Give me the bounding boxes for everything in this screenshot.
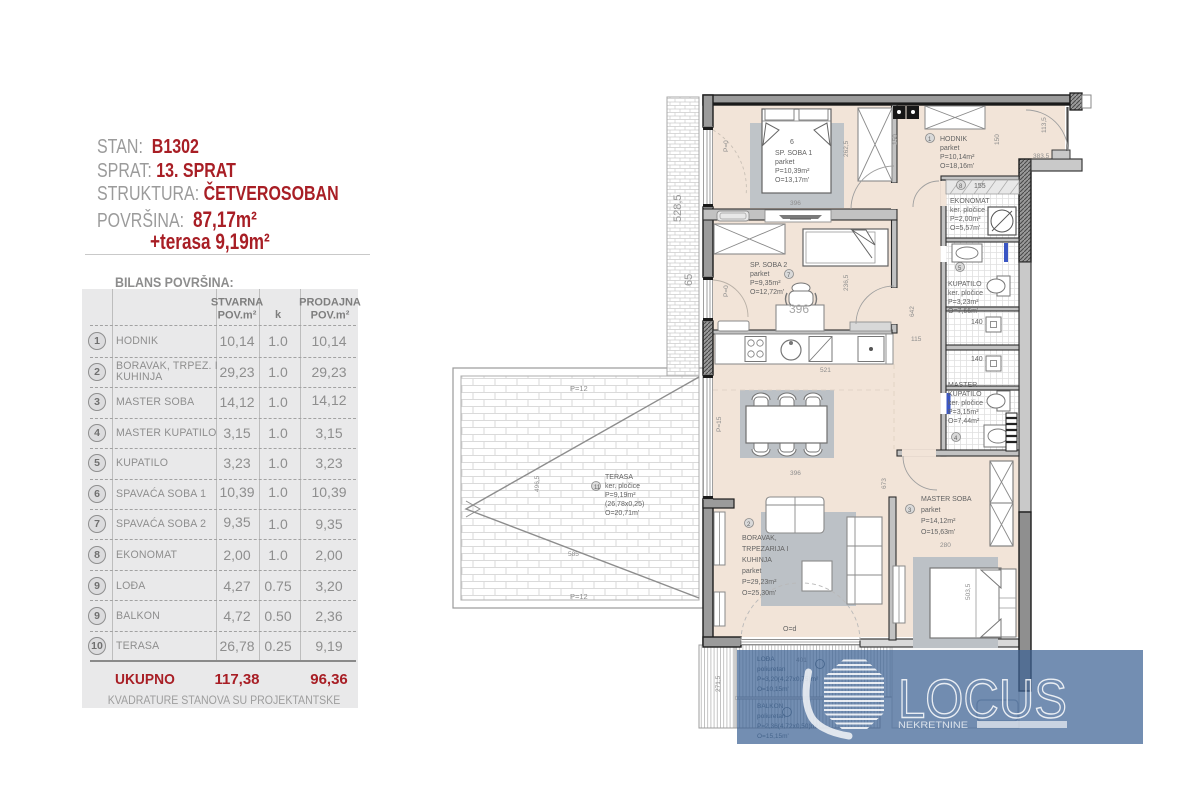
svg-text:parket: parket (750, 271, 770, 278)
svg-text:P=15: P=15 (716, 416, 723, 432)
svg-text:P=0: P=0 (723, 140, 730, 152)
svg-text:271,5: 271,5 (715, 675, 722, 692)
svg-text:673: 673 (881, 478, 888, 489)
svg-text:P=14,12m²: P=14,12m² (921, 518, 956, 525)
svg-text:P=9,35m²: P=9,35m² (750, 280, 781, 287)
svg-text:ker. pločice: ker. pločice (948, 290, 983, 297)
svg-text:P=10,14m²: P=10,14m² (940, 154, 975, 161)
svg-text:parket: parket (940, 145, 960, 152)
svg-text:TERASA: TERASA (605, 474, 633, 481)
svg-text:521: 521 (820, 367, 831, 374)
svg-text:ker. pločice: ker. pločice (948, 400, 983, 407)
svg-text:O=13,17m': O=13,17m' (775, 177, 809, 184)
svg-text:O=25,30m': O=25,30m' (742, 590, 776, 597)
svg-text:MASTER SOBA: MASTER SOBA (921, 496, 972, 503)
svg-text:O=20,71m': O=20,71m' (605, 510, 639, 517)
svg-text:HODNIK: HODNIK (940, 136, 968, 143)
svg-text:TRPEZARIJA I: TRPEZARIJA I (742, 546, 788, 553)
svg-text:150: 150 (892, 134, 899, 145)
svg-text:SP. SOBA 1: SP. SOBA 1 (775, 150, 812, 157)
svg-text:O=d: O=d (783, 626, 797, 633)
svg-text:EKONOMAT: EKONOMAT (950, 198, 990, 205)
svg-text:262,5: 262,5 (843, 140, 850, 157)
svg-text:280: 280 (940, 542, 951, 549)
svg-text:155: 155 (974, 183, 986, 190)
svg-text:140: 140 (971, 319, 983, 326)
svg-text:O=7,44m²: O=7,44m² (948, 418, 980, 425)
svg-text:ker. pločice: ker. pločice (950, 207, 985, 214)
svg-text:P=12: P=12 (570, 384, 588, 393)
svg-text:383,5: 383,5 (1033, 153, 1050, 160)
svg-text:140: 140 (971, 356, 983, 363)
svg-text:NEKRETNINE: NEKRETNINE (898, 720, 968, 730)
svg-text:P=29,23m²: P=29,23m² (742, 579, 777, 586)
svg-text:642: 642 (909, 306, 916, 317)
svg-text:O=5,57m': O=5,57m' (950, 225, 980, 232)
svg-text:115: 115 (911, 336, 922, 343)
svg-text:P=2,00m²: P=2,00m² (950, 216, 981, 223)
svg-text:585: 585 (568, 551, 579, 558)
svg-text:parket: parket (921, 507, 941, 514)
svg-text:503,5: 503,5 (965, 583, 972, 600)
svg-text:O=12,72m': O=12,72m' (750, 289, 784, 296)
svg-text:O=18,16m': O=18,16m' (940, 163, 974, 170)
svg-text:KUPATILO: KUPATILO (948, 281, 982, 288)
svg-text:528,5: 528,5 (672, 194, 684, 222)
svg-text:P=0: P=0 (723, 285, 730, 297)
svg-text:396: 396 (789, 302, 809, 316)
svg-text:P=10,39m²: P=10,39m² (775, 168, 810, 175)
svg-text:113,5: 113,5 (1041, 117, 1048, 133)
svg-text:11: 11 (594, 485, 601, 491)
svg-text:BORAVAK,: BORAVAK, (742, 535, 777, 542)
svg-text:parket: parket (775, 159, 795, 166)
svg-text:496,5: 496,5 (534, 475, 541, 492)
svg-text:(26,78x0,25): (26,78x0,25) (605, 501, 644, 508)
svg-text:SP. SOBA 2: SP. SOBA 2 (750, 262, 787, 269)
svg-text:ker. pločice: ker. pločice (605, 483, 640, 490)
svg-text:O=15,63m': O=15,63m' (921, 529, 955, 536)
svg-text:P=3,23m²: P=3,23m² (948, 299, 979, 306)
svg-text:O=7,66m': O=7,66m' (948, 308, 978, 315)
svg-text:150: 150 (994, 134, 1001, 145)
svg-text:P=9,19m²: P=9,19m² (605, 492, 636, 499)
svg-text:65: 65 (683, 274, 695, 286)
svg-text:6: 6 (790, 139, 794, 146)
svg-text:KUHINJA: KUHINJA (742, 557, 772, 564)
svg-text:parket: parket (742, 568, 762, 575)
svg-text:MASTER: MASTER (948, 382, 977, 389)
svg-text:396: 396 (790, 200, 801, 207)
svg-text:396: 396 (790, 470, 801, 477)
svg-text:P=3,15m²: P=3,15m² (948, 409, 979, 416)
svg-text:236,5: 236,5 (843, 274, 850, 291)
svg-text:KUPATILO: KUPATILO (948, 391, 982, 398)
svg-text:P=12: P=12 (570, 592, 588, 601)
